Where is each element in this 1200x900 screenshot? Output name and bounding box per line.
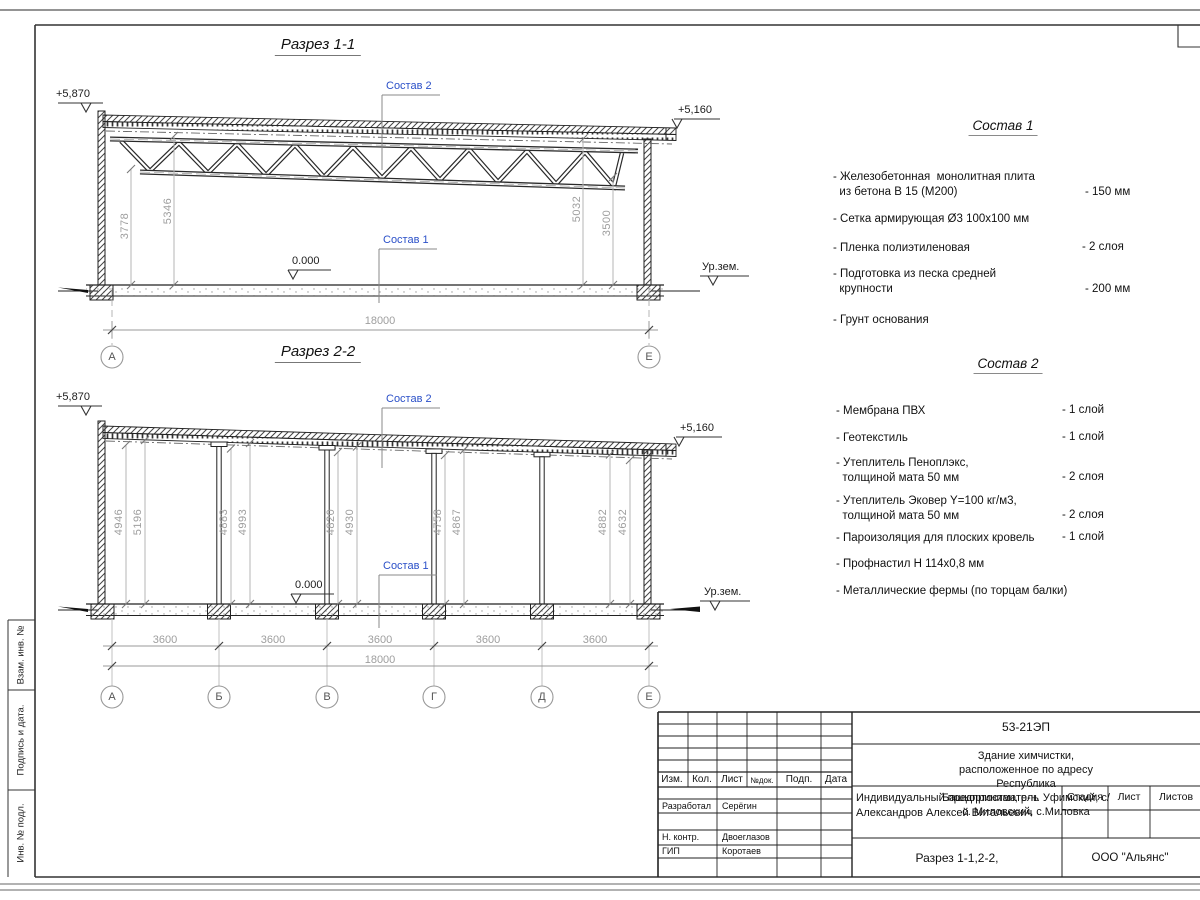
section2-axis-g: Г — [431, 691, 437, 703]
section2-height-dim: 4867 — [451, 509, 463, 535]
titleblock-role-name: Коротаев — [722, 846, 761, 856]
section2-axis-b: Б — [215, 691, 222, 703]
section2-bay-dim: 3600 — [368, 634, 392, 646]
titleblock-col-podp: Подп. — [786, 774, 813, 785]
composition2-item: - Мембрана ПВХ — [836, 404, 925, 419]
composition2-title: Состав 2 — [974, 356, 1043, 374]
titleblock-col-list: Лист — [721, 774, 743, 785]
section2-bay-dim: 3600 — [153, 634, 177, 646]
titleblock-col-data: Дата — [825, 774, 847, 785]
composition2-value: - 1 слой — [1062, 431, 1104, 443]
section1-axis-a: А — [108, 351, 115, 363]
section2-axis-a: А — [108, 691, 115, 703]
titleblock-col-izm: Изм. — [661, 774, 682, 785]
section1-dim-3500: 3500 — [601, 210, 613, 236]
titleblock-sheet-title: Разрез 1-1,2-2, — [916, 851, 999, 865]
section2-bay-dim: 3600 — [583, 634, 607, 646]
composition1-item: - Пленка полиэтиленовая — [833, 241, 970, 256]
titleblock-sheets-label: Листов — [1159, 791, 1193, 803]
composition1-title: Состав 1 — [969, 118, 1038, 136]
section2-level-left: +5,870 — [56, 391, 90, 403]
composition2-item: - Металлические фермы (по торцам балки) — [836, 584, 1067, 599]
composition1-item: - Подготовка из песка средней крупности — [833, 267, 996, 297]
strip-label-inv-podl: Инв. № подл. — [16, 803, 27, 862]
section1-dim-3778: 3778 — [119, 213, 131, 239]
composition2-item: - Пароизоляция для плоских кровель — [836, 531, 1035, 546]
section2-ground-label: Ур.зем. — [704, 586, 741, 598]
section2-height-dim: 4820 — [325, 509, 337, 535]
section1-dim-total: 18000 — [365, 315, 396, 327]
section1-level-right: +5,160 — [678, 104, 712, 116]
titleblock-col-kol: Кол. — [692, 774, 712, 785]
section1-dim-5032: 5032 — [571, 196, 583, 222]
titleblock-doc-code: 53-21ЭП — [1002, 720, 1050, 734]
section1-level-left: +5,870 — [56, 88, 90, 100]
composition1-item: - Грунт основания — [833, 313, 929, 328]
titleblock-organization: ООО "Альянс" — [1092, 852, 1169, 864]
section1-composition2-callout: Состав 2 — [386, 80, 432, 92]
titleblock-client: Индивидуальный предприниматель Александр… — [856, 791, 1039, 820]
section2-composition2-callout: Состав 2 — [386, 393, 432, 405]
strip-label-vzam-inv: Взам. инв. № — [16, 626, 27, 685]
titleblock-sheet-label: Лист — [1118, 791, 1141, 803]
titleblock-role: ГИП — [662, 846, 680, 856]
titleblock-col-ndoc: №док. — [750, 776, 773, 785]
section2-height-dim: 5196 — [132, 509, 144, 535]
section2-axis-v: В — [323, 691, 330, 703]
section2-axis-e: Е — [645, 691, 652, 703]
composition1-value: - 150 мм — [1085, 186, 1130, 198]
titleblock-role: Разработал — [662, 801, 711, 811]
section2-height-dim: 4946 — [113, 509, 125, 535]
composition2-value: - 2 слоя — [1062, 509, 1104, 521]
composition1-item: - Сетка армирующая Ø3 100x100 мм — [833, 212, 1029, 227]
section2-bay-dim: 3600 — [476, 634, 500, 646]
section1-dim-5346: 5346 — [162, 198, 174, 224]
composition2-item: - Профнастил Н 114х0,8 мм — [836, 557, 984, 572]
section2-dim-total: 18000 — [365, 654, 396, 666]
titleblock-role: Н. контр. — [662, 832, 699, 842]
section2-height-dim: 4758 — [432, 509, 444, 535]
section2-axis-d: Д — [538, 691, 545, 703]
section1-level-zero: 0.000 — [292, 255, 320, 267]
composition2-value: - 2 слоя — [1062, 471, 1104, 483]
section2-bay-dim: 3600 — [261, 634, 285, 646]
strip-label-podpis-data: Подпись и дата. — [16, 705, 27, 776]
section2-height-dim: 4930 — [344, 509, 356, 535]
composition1-value: - 2 слоя — [1082, 241, 1124, 253]
section2-level-right: +5,160 — [680, 422, 714, 434]
composition2-item: - Геотекстиль — [836, 431, 908, 446]
composition1-value: - 200 мм — [1085, 283, 1130, 295]
section1-title: Разрез 1-1 — [275, 36, 361, 56]
section2-title: Разрез 2-2 — [275, 343, 361, 363]
drawing-sheet: Разрез 1-1 +5,870 +5,160 Состав 2 Состав… — [0, 0, 1200, 900]
section2-height-dim: 4883 — [218, 509, 230, 535]
titleblock-role-name: Двоеглазов — [722, 832, 770, 842]
section2-height-dim: 4993 — [237, 509, 249, 535]
section2-height-dim: 4882 — [597, 509, 609, 535]
composition2-value: - 1 слой — [1062, 404, 1104, 416]
composition2-item: - Утеплитель Пеноплэкс, толщиной мата 50… — [836, 456, 969, 486]
section2-level-zero: 0.000 — [295, 579, 323, 591]
section1-ground-label: Ур.зем. — [702, 261, 739, 273]
section2-composition1-callout: Состав 1 — [383, 560, 429, 572]
section1-composition1-callout: Состав 1 — [383, 234, 429, 246]
titleblock-stage-label: Стадия — [1067, 791, 1103, 803]
section2-height-dim: 4632 — [617, 509, 629, 535]
composition2-item: - Утеплитель Эковер Y=100 кг/м3, толщино… — [836, 494, 1017, 524]
titleblock-role-name: Серёгин — [722, 801, 757, 811]
composition1-item: - Железобетонная монолитная плита из бет… — [833, 170, 1035, 200]
composition2-value: - 1 слой — [1062, 531, 1104, 543]
section1-axis-e: Е — [645, 351, 652, 363]
